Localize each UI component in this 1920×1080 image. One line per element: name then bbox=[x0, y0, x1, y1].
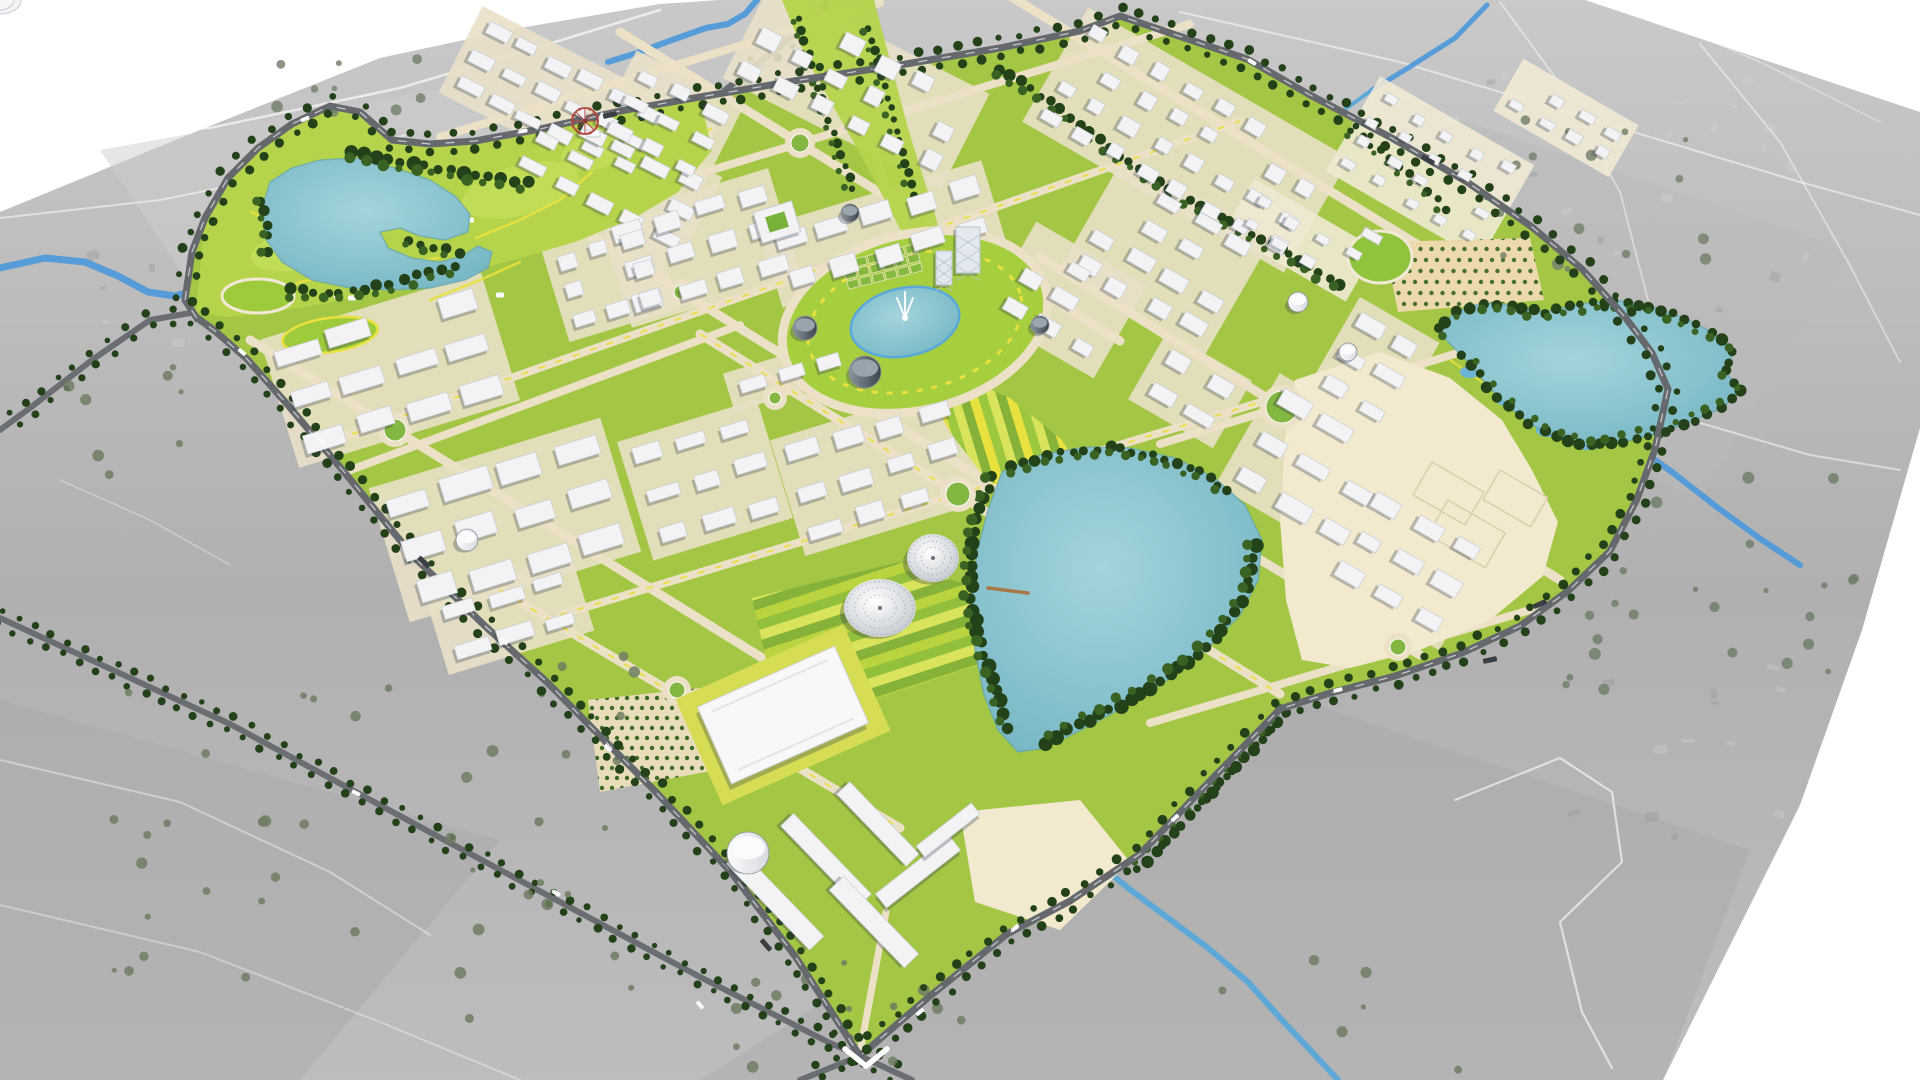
roadside-tree bbox=[375, 807, 383, 815]
terrain-tree bbox=[1585, 611, 1594, 620]
boundary-tree bbox=[334, 451, 343, 460]
orchard-tree bbox=[1462, 247, 1466, 251]
orchard-tree bbox=[630, 746, 634, 750]
boundary-tree bbox=[1017, 916, 1025, 924]
forest-tree bbox=[1243, 555, 1251, 563]
orchard-tree bbox=[1468, 258, 1472, 262]
boundary-tree bbox=[248, 136, 256, 144]
orchard-tree bbox=[635, 716, 639, 720]
forest-tree bbox=[256, 248, 265, 257]
boundary-tree bbox=[1123, 867, 1131, 875]
boundary-tree bbox=[215, 167, 224, 176]
boundary-tree bbox=[1641, 498, 1650, 507]
orchard-tree bbox=[1468, 280, 1472, 284]
boundary-tree bbox=[303, 103, 312, 112]
orchard-tree bbox=[655, 756, 659, 760]
roadside-tree bbox=[833, 1055, 840, 1062]
glass-cylinder-tower-top bbox=[843, 206, 858, 216]
roadside-tree bbox=[207, 721, 214, 728]
roundabout-island bbox=[669, 682, 685, 698]
terrain-tree bbox=[203, 887, 211, 895]
forest-tree bbox=[1673, 419, 1679, 425]
boundary-tree bbox=[1132, 844, 1141, 853]
roadside-tree bbox=[747, 994, 754, 1001]
boundary-tree bbox=[1475, 194, 1483, 202]
terrain-tree bbox=[751, 978, 760, 987]
terrain-tree bbox=[1693, 587, 1698, 592]
boundary-tree bbox=[1326, 94, 1333, 101]
forest-tree bbox=[335, 294, 343, 302]
orchard-tree bbox=[1479, 258, 1483, 262]
village-texture bbox=[1711, 701, 1718, 705]
forest-tree bbox=[1632, 434, 1641, 443]
roadside-tree bbox=[224, 726, 230, 732]
forest-tree bbox=[1515, 410, 1524, 419]
orchard-tree bbox=[1506, 291, 1510, 295]
boundary-tree bbox=[1674, 388, 1681, 395]
terrain-tree bbox=[1500, 252, 1507, 259]
boundary-tree bbox=[1296, 707, 1303, 714]
forest-tree bbox=[823, 125, 829, 131]
orchard-tree bbox=[1424, 258, 1428, 262]
boundary-tree bbox=[379, 117, 388, 126]
boundary-tree bbox=[603, 753, 611, 761]
roadside-tree bbox=[576, 917, 581, 922]
boundary-tree bbox=[1429, 669, 1437, 677]
orchard-tree bbox=[680, 746, 684, 750]
forest-tree bbox=[1074, 718, 1085, 729]
boundary-tree bbox=[1163, 38, 1170, 45]
orchard-tree bbox=[1506, 269, 1510, 273]
boundary-tree bbox=[751, 916, 759, 924]
boundary-tree bbox=[1047, 897, 1057, 907]
boundary-tree bbox=[426, 148, 434, 156]
forest-tree bbox=[1490, 380, 1497, 387]
boundary-tree bbox=[1658, 345, 1664, 351]
boundary-tree bbox=[187, 321, 193, 327]
forest-tree bbox=[1438, 332, 1447, 341]
boundary-tree bbox=[995, 35, 1001, 41]
forest-tree bbox=[1055, 456, 1063, 464]
boundary-tree bbox=[855, 76, 864, 85]
forest-tree bbox=[1644, 432, 1652, 440]
terrain-tree bbox=[391, 104, 402, 115]
boundary-tree bbox=[833, 60, 842, 69]
forest-tree bbox=[1618, 437, 1628, 447]
orchard-tree bbox=[1440, 269, 1444, 273]
orchard-tree bbox=[650, 726, 654, 730]
boundary-tree bbox=[302, 408, 311, 417]
boundary-tree bbox=[978, 961, 986, 969]
boundary-tree bbox=[1291, 692, 1300, 701]
boundary-tree bbox=[1652, 463, 1661, 472]
village-texture bbox=[172, 338, 185, 347]
terrain-tree bbox=[1566, 674, 1573, 681]
orchard-tree bbox=[670, 746, 674, 750]
roadside-tree bbox=[229, 712, 238, 721]
roadside-tree bbox=[158, 697, 166, 705]
forest-tree bbox=[258, 205, 269, 216]
roadside-tree bbox=[494, 871, 501, 878]
boundary-tree bbox=[897, 55, 903, 61]
boundary-tree bbox=[843, 1019, 853, 1029]
golf-cart bbox=[496, 293, 504, 298]
forest-tree bbox=[1329, 281, 1339, 291]
roadside-tree bbox=[290, 762, 297, 769]
roadside-tree bbox=[150, 321, 157, 328]
terrain-tree bbox=[310, 695, 317, 702]
boundary-tree bbox=[958, 59, 967, 68]
orchard-tree bbox=[605, 716, 609, 720]
boundary-tree bbox=[1200, 770, 1206, 776]
boundary-tree bbox=[1457, 185, 1466, 194]
boundary-tree bbox=[936, 62, 943, 69]
boundary-tree bbox=[1132, 25, 1140, 33]
boundary-tree bbox=[308, 119, 318, 129]
roadside-tree bbox=[32, 622, 39, 629]
boundary-tree bbox=[1599, 540, 1608, 549]
boundary-tree bbox=[710, 858, 716, 864]
boundary-tree bbox=[577, 725, 585, 733]
forest-tree bbox=[446, 270, 455, 279]
orchard-tree bbox=[1435, 302, 1439, 306]
forest-tree bbox=[427, 168, 434, 175]
forest-tree bbox=[1594, 304, 1601, 311]
boundary-tree bbox=[260, 152, 269, 161]
forest-tree bbox=[1442, 206, 1451, 215]
orchard-tree bbox=[675, 716, 679, 720]
forest-tree bbox=[832, 155, 837, 160]
forest-tree bbox=[1506, 306, 1515, 315]
boundary-tree bbox=[1254, 73, 1262, 81]
boundary-tree bbox=[1213, 783, 1221, 791]
boundary-tree bbox=[493, 140, 501, 148]
boundary-tree bbox=[631, 778, 639, 786]
boundary-tree bbox=[984, 938, 992, 946]
roadside-tree bbox=[741, 1002, 750, 1011]
forest-tree bbox=[1180, 470, 1186, 476]
roadside-tree bbox=[609, 935, 617, 943]
boundary-tree bbox=[564, 711, 572, 719]
orchard-tree bbox=[660, 746, 664, 750]
boundary-tree bbox=[1087, 892, 1094, 899]
boundary-tree bbox=[406, 129, 414, 137]
forest-tree bbox=[1186, 464, 1194, 472]
forest-tree bbox=[1229, 599, 1238, 608]
forest-tree bbox=[1493, 304, 1502, 313]
roadside-tree bbox=[798, 1018, 804, 1024]
orchard-tree bbox=[1512, 258, 1516, 262]
boundary-tree bbox=[1240, 728, 1250, 738]
forest-tree bbox=[907, 180, 916, 189]
orchard-tree bbox=[600, 766, 604, 770]
roadside-tree bbox=[838, 1065, 845, 1072]
forest-tree bbox=[1206, 472, 1216, 482]
forest-tree bbox=[258, 215, 265, 222]
orchard-tree bbox=[1512, 280, 1516, 284]
boundary-tree bbox=[359, 505, 366, 512]
forest-tree bbox=[961, 575, 971, 585]
roadside-tree bbox=[276, 754, 282, 760]
forest-tree bbox=[1464, 303, 1476, 315]
boundary-tree bbox=[537, 686, 547, 696]
orchard-tree bbox=[1457, 280, 1461, 284]
boundary-tree bbox=[1588, 287, 1596, 295]
terrain-tree bbox=[1727, 648, 1737, 658]
boundary-tree bbox=[1389, 126, 1396, 133]
boundary-tree bbox=[324, 109, 333, 118]
terrain-tree bbox=[534, 817, 543, 826]
roadside-tree bbox=[560, 908, 568, 916]
boundary-tree bbox=[659, 806, 666, 813]
forest-tree bbox=[263, 221, 273, 231]
boundary-tree bbox=[1627, 307, 1636, 316]
terrain-tree bbox=[332, 86, 338, 92]
boundary-tree bbox=[936, 972, 945, 981]
orchard-tree bbox=[1528, 247, 1532, 251]
terrain-tree bbox=[628, 985, 634, 991]
forest-tree bbox=[1177, 655, 1188, 666]
boundary-tree bbox=[1485, 183, 1494, 192]
forest-tree bbox=[1692, 328, 1699, 335]
orchard-tree bbox=[1506, 247, 1510, 251]
boundary-tree bbox=[1261, 58, 1269, 66]
boundary-tree bbox=[1394, 680, 1404, 690]
forest-tree bbox=[995, 717, 1004, 726]
boundary-tree bbox=[808, 963, 817, 972]
boundary-tree bbox=[721, 871, 730, 880]
forest-tree bbox=[1716, 398, 1724, 406]
boundary-tree bbox=[831, 1030, 838, 1037]
boundary-tree bbox=[287, 421, 294, 428]
terrain-tree bbox=[112, 968, 117, 973]
boundary-tree bbox=[879, 1021, 885, 1027]
boundary-tree bbox=[1520, 230, 1529, 239]
dome-cap bbox=[878, 606, 882, 610]
forest-tree bbox=[1394, 170, 1400, 176]
boundary-tree bbox=[907, 997, 914, 1004]
terrain-tree bbox=[1574, 223, 1585, 234]
boundary-tree bbox=[1295, 76, 1302, 83]
forest-tree bbox=[824, 117, 831, 124]
orchard-tree bbox=[1446, 280, 1450, 284]
boundary-tree bbox=[1241, 754, 1248, 761]
tower-body bbox=[936, 251, 952, 285]
roadside-tree bbox=[459, 853, 466, 860]
roadside-tree bbox=[478, 864, 485, 871]
boundary-tree bbox=[195, 251, 203, 259]
boundary-tree bbox=[1081, 880, 1089, 888]
boundary-tree bbox=[277, 405, 284, 412]
forest-tree bbox=[395, 165, 402, 172]
terrain-tree bbox=[1219, 986, 1227, 994]
roadside-tree bbox=[792, 1029, 799, 1036]
round-white-building-top bbox=[1290, 294, 1306, 305]
boundary-tree bbox=[329, 93, 336, 100]
boundary-tree bbox=[1567, 594, 1575, 602]
forest-tree bbox=[372, 290, 379, 297]
orchard-tree bbox=[645, 736, 649, 740]
roadside-tree bbox=[64, 639, 71, 646]
forest-tree bbox=[891, 116, 897, 122]
roadside-tree bbox=[814, 1023, 823, 1032]
boundary-tree bbox=[1237, 63, 1246, 72]
terrain-tree bbox=[445, 833, 456, 844]
boundary-tree bbox=[1641, 325, 1648, 332]
orchard-tree bbox=[590, 706, 594, 710]
boundary-tree bbox=[250, 347, 258, 355]
orchard-tree bbox=[1495, 247, 1499, 251]
orchard-tree bbox=[620, 706, 624, 710]
roadside-tree bbox=[308, 771, 315, 778]
boundary-tree bbox=[489, 123, 497, 131]
boundary-tree bbox=[1318, 108, 1325, 115]
forest-tree bbox=[309, 289, 317, 297]
boundary-tree bbox=[822, 1012, 830, 1020]
forest-tree bbox=[1006, 469, 1015, 478]
orchard-tree bbox=[615, 736, 619, 740]
boundary-tree bbox=[1333, 115, 1343, 125]
forest-tree bbox=[402, 241, 409, 248]
boundary-tree bbox=[977, 55, 987, 65]
terrain-tree bbox=[610, 951, 619, 960]
boundary-tree bbox=[793, 970, 801, 978]
forest-tree bbox=[1473, 358, 1480, 365]
orchard-tree bbox=[1462, 291, 1466, 295]
terrain-tree bbox=[455, 967, 467, 979]
boundary-tree bbox=[176, 271, 182, 277]
boundary-tree bbox=[1543, 592, 1551, 600]
forest-tree bbox=[1124, 157, 1132, 165]
boundary-tree bbox=[1456, 641, 1465, 650]
orchard-tree bbox=[690, 766, 694, 770]
forest-tree bbox=[831, 130, 838, 137]
boundary-tree bbox=[1515, 207, 1522, 214]
boundary-tree bbox=[1184, 45, 1191, 52]
terrain-tree bbox=[276, 60, 285, 69]
boundary-tree bbox=[1613, 316, 1622, 325]
boundary-tree bbox=[193, 272, 201, 280]
tower-body bbox=[956, 227, 980, 273]
boundary-tree bbox=[1329, 696, 1338, 705]
boundary-tree bbox=[1286, 90, 1294, 98]
boundary-tree bbox=[1244, 45, 1254, 55]
roundabout-island bbox=[1390, 639, 1406, 655]
forest-tree bbox=[1191, 472, 1200, 481]
boundary-tree bbox=[1074, 19, 1083, 28]
forest-tree bbox=[1242, 540, 1252, 550]
boundary-tree bbox=[654, 93, 660, 99]
boundary-tree bbox=[682, 832, 690, 840]
terrain-tree bbox=[311, 85, 318, 92]
terrain-tree bbox=[258, 817, 268, 827]
roadside-tree bbox=[76, 659, 84, 667]
boundary-tree bbox=[966, 950, 973, 957]
orchard-tree bbox=[1413, 302, 1417, 306]
roadside-tree bbox=[181, 693, 187, 699]
forest-tree bbox=[1218, 615, 1227, 624]
forest-tree bbox=[991, 70, 1001, 80]
boundary-tree bbox=[914, 47, 924, 57]
roadside-tree bbox=[115, 661, 121, 667]
boundary-tree bbox=[1627, 493, 1635, 501]
forest-tree bbox=[433, 165, 442, 174]
boundary-tree bbox=[1403, 658, 1412, 667]
boundary-tree bbox=[1585, 257, 1595, 267]
roadside-tree bbox=[724, 997, 731, 1004]
roadside-tree bbox=[631, 932, 638, 939]
boundary-tree bbox=[1514, 615, 1520, 621]
roadside-tree bbox=[37, 387, 45, 395]
roadside-tree bbox=[498, 859, 505, 866]
terrain-tree bbox=[1361, 1004, 1366, 1009]
boundary-tree bbox=[334, 473, 342, 481]
forest-tree bbox=[1645, 307, 1652, 314]
boundary-tree bbox=[812, 998, 821, 1007]
forest-tree bbox=[1090, 450, 1099, 459]
boundary-tree bbox=[1572, 567, 1580, 575]
orchard-tree bbox=[1440, 291, 1444, 295]
forest-tree bbox=[408, 280, 418, 290]
terrain-tree bbox=[524, 890, 534, 900]
boundary-tree bbox=[592, 101, 601, 110]
boundary-tree bbox=[993, 949, 1001, 957]
forest-tree bbox=[960, 561, 969, 570]
roadside-tree bbox=[9, 630, 15, 636]
boundary-tree bbox=[824, 990, 832, 998]
orchard-tree bbox=[645, 696, 649, 700]
forest-tree bbox=[794, 33, 800, 39]
boundary-tree bbox=[1016, 33, 1022, 39]
roadside-tree bbox=[27, 638, 33, 644]
terrain-tree bbox=[888, 1056, 897, 1065]
orchard-tree bbox=[1484, 247, 1488, 251]
boundary-tree bbox=[668, 796, 676, 804]
roadside-tree bbox=[69, 364, 75, 370]
roadside-tree bbox=[188, 712, 196, 720]
boundary-tree bbox=[370, 516, 377, 523]
boundary-tree bbox=[920, 984, 927, 991]
forest-tree bbox=[1662, 314, 1672, 324]
forest-tree bbox=[1678, 321, 1684, 327]
roadside-tree bbox=[325, 781, 333, 789]
forest-tree bbox=[1344, 133, 1351, 140]
orchard-tree bbox=[630, 706, 634, 710]
boundary-tree bbox=[1185, 787, 1194, 796]
roadside-tree bbox=[765, 1002, 773, 1010]
orchard-tree bbox=[1413, 258, 1417, 262]
terrain-tree bbox=[461, 772, 472, 783]
boundary-tree bbox=[391, 544, 400, 553]
forest-tree bbox=[973, 651, 982, 660]
forest-tree bbox=[873, 79, 880, 86]
orchard-tree bbox=[1424, 280, 1428, 284]
forest-tree bbox=[344, 152, 355, 163]
forest-tree bbox=[1074, 453, 1082, 461]
orchard-tree bbox=[605, 776, 609, 780]
terrain-tree bbox=[299, 819, 309, 829]
forest-tree bbox=[1476, 369, 1485, 378]
boundary-tree bbox=[952, 959, 962, 969]
boundary-tree bbox=[856, 58, 864, 66]
forest-tree bbox=[904, 168, 913, 177]
terrain-tree bbox=[957, 1016, 966, 1025]
forest-tree bbox=[1147, 674, 1156, 683]
boundary-tree bbox=[1668, 406, 1677, 415]
boundary-tree bbox=[470, 144, 480, 154]
boundary-tree bbox=[1358, 110, 1365, 117]
orchard-tree bbox=[1413, 280, 1417, 284]
